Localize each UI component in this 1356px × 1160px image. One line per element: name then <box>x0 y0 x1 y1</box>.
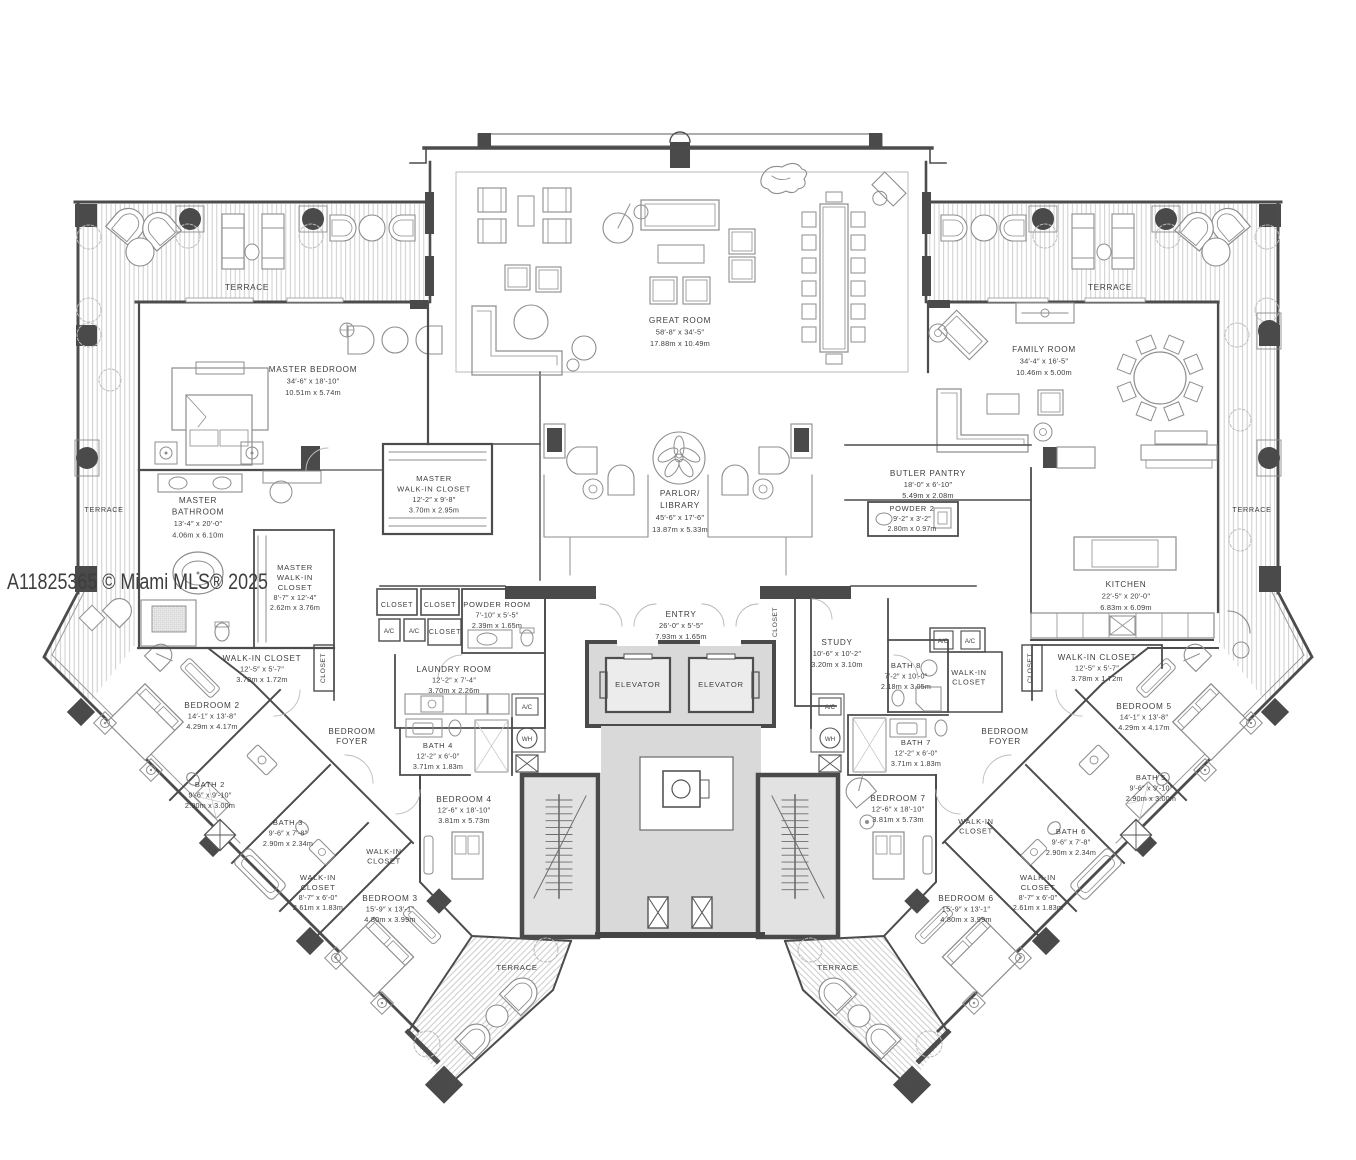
svg-text:4.06m x 6.10m: 4.06m x 6.10m <box>172 531 223 540</box>
svg-text:TERRACE: TERRACE <box>1088 283 1132 292</box>
svg-text:BATH 6: BATH 6 <box>1056 827 1086 836</box>
svg-text:26′-0″ x 5′-5″: 26′-0″ x 5′-5″ <box>659 621 703 630</box>
svg-text:8′-7″ x 12′-4″: 8′-7″ x 12′-4″ <box>274 593 317 602</box>
svg-text:CLOSET: CLOSET <box>320 653 327 683</box>
svg-text:ENTRY: ENTRY <box>665 610 696 619</box>
svg-text:2.39m x 1.65m: 2.39m x 1.65m <box>472 621 522 630</box>
svg-text:WALK-IN CLOSET: WALK-IN CLOSET <box>397 485 471 494</box>
svg-text:34′-4″ x 16′-5″: 34′-4″ x 16′-5″ <box>1020 357 1069 366</box>
svg-text:9′-6″ x 7′-8″: 9′-6″ x 7′-8″ <box>269 829 308 838</box>
svg-text:WALK-IN CLOSET: WALK-IN CLOSET <box>1058 653 1137 662</box>
svg-text:WALK-IN: WALK-IN <box>951 668 986 677</box>
svg-text:CLOSET: CLOSET <box>429 629 461 636</box>
svg-text:BEDROOM 5: BEDROOM 5 <box>1116 702 1171 711</box>
svg-text:CLOSET: CLOSET <box>424 602 456 609</box>
svg-text:TERRACE: TERRACE <box>1232 505 1271 514</box>
svg-text:9′-6″ x 9′-10″: 9′-6″ x 9′-10″ <box>1130 784 1173 793</box>
svg-text:4.80m x 3.99m: 4.80m x 3.99m <box>940 915 991 924</box>
svg-text:2.62m x 3.76m: 2.62m x 3.76m <box>270 603 320 612</box>
svg-text:15′-9″ x 13′-1″: 15′-9″ x 13′-1″ <box>942 905 991 914</box>
svg-text:2.80m x 0.97m: 2.80m x 0.97m <box>888 526 937 533</box>
svg-text:WALK-IN: WALK-IN <box>958 817 993 826</box>
svg-text:17.88m x 10.49m: 17.88m x 10.49m <box>650 339 710 348</box>
svg-text:45′-6″ x 17′-6″: 45′-6″ x 17′-6″ <box>656 513 705 522</box>
svg-text:13′-4″ x 20′-0″: 13′-4″ x 20′-0″ <box>174 519 223 528</box>
svg-text:7′-2″ x 10′-0″: 7′-2″ x 10′-0″ <box>885 672 928 681</box>
svg-text:BATH 8: BATH 8 <box>891 661 921 670</box>
svg-text:BEDROOM: BEDROOM <box>981 727 1028 736</box>
svg-text:A/C: A/C <box>409 628 420 635</box>
svg-text:8′-7″ x 6′-0″: 8′-7″ x 6′-0″ <box>299 893 338 902</box>
svg-text:3.70m x 2.26m: 3.70m x 2.26m <box>428 686 479 695</box>
svg-text:STUDY: STUDY <box>821 638 852 647</box>
svg-text:2.18m x 3.05m: 2.18m x 3.05m <box>881 682 931 691</box>
svg-text:CLOSET: CLOSET <box>301 883 336 892</box>
svg-text:3.20m x 3.10m: 3.20m x 3.10m <box>811 660 862 669</box>
svg-text:BATH 3: BATH 3 <box>273 818 303 827</box>
svg-text:3.78m x 1.72m: 3.78m x 1.72m <box>1071 674 1122 683</box>
svg-text:2.90m x 2.34m: 2.90m x 2.34m <box>263 839 313 848</box>
svg-text:GREAT ROOM: GREAT ROOM <box>649 316 711 325</box>
svg-text:CLOSET: CLOSET <box>772 607 779 637</box>
svg-text:TERRACE: TERRACE <box>496 963 537 972</box>
svg-text:2.61m x 1.83m: 2.61m x 1.83m <box>1013 903 1063 912</box>
svg-text:TERRACE: TERRACE <box>817 963 858 972</box>
svg-text:CLOSET: CLOSET <box>278 583 313 592</box>
svg-text:BEDROOM 4: BEDROOM 4 <box>436 795 491 804</box>
svg-text:12′-5″ x 5′-7″: 12′-5″ x 5′-7″ <box>1075 664 1119 673</box>
svg-text:3.81m x 5.73m: 3.81m x 5.73m <box>872 815 923 824</box>
svg-text:BATHROOM: BATHROOM <box>172 508 224 517</box>
svg-text:BATH 4: BATH 4 <box>423 741 453 750</box>
svg-text:A/C: A/C <box>522 704 533 711</box>
svg-text:TERRACE: TERRACE <box>84 505 123 514</box>
svg-text:BUTLER PANTRY: BUTLER PANTRY <box>890 469 966 478</box>
svg-text:7.93m x 1.65m: 7.93m x 1.65m <box>655 632 706 641</box>
svg-text:FOYER: FOYER <box>336 737 368 746</box>
svg-text:BEDROOM: BEDROOM <box>328 727 375 736</box>
svg-text:34′-6″ x 18′-10″: 34′-6″ x 18′-10″ <box>287 377 340 386</box>
svg-text:TERRACE: TERRACE <box>225 283 269 292</box>
svg-text:BATH 7: BATH 7 <box>901 738 931 747</box>
svg-text:A/C: A/C <box>938 638 949 645</box>
svg-text:BEDROOM 3: BEDROOM 3 <box>362 894 417 903</box>
svg-text:FAMILY ROOM: FAMILY ROOM <box>1012 345 1076 354</box>
svg-text:9′-2″ x 3′-2″: 9′-2″ x 3′-2″ <box>893 516 931 523</box>
svg-text:2.90m x 3.00m: 2.90m x 3.00m <box>185 801 235 810</box>
svg-text:BEDROOM 7: BEDROOM 7 <box>870 794 925 803</box>
svg-text:5.49m x 2.08m: 5.49m x 2.08m <box>902 491 953 500</box>
svg-text:BEDROOM 2: BEDROOM 2 <box>184 701 239 710</box>
svg-text:LIBRARY: LIBRARY <box>660 501 700 510</box>
svg-text:WALK-IN: WALK-IN <box>277 573 313 582</box>
svg-text:2.61m x 1.83m: 2.61m x 1.83m <box>293 903 343 912</box>
svg-text:10′-6″ x 10′-2″: 10′-6″ x 10′-2″ <box>813 649 862 658</box>
svg-text:WALK-IN CLOSET: WALK-IN CLOSET <box>223 654 302 663</box>
svg-text:CLOSET: CLOSET <box>381 602 413 609</box>
svg-text:MASTER BEDROOM: MASTER BEDROOM <box>269 365 358 374</box>
svg-text:CLOSET: CLOSET <box>1027 653 1034 683</box>
svg-text:12′-2″ x 9′-8″: 12′-2″ x 9′-8″ <box>413 495 456 504</box>
svg-text:4.29m x 4.17m: 4.29m x 4.17m <box>186 722 237 731</box>
svg-text:WALK-IN: WALK-IN <box>366 847 401 856</box>
svg-text:9′-6″ x 9′-10″: 9′-6″ x 9′-10″ <box>189 791 232 800</box>
svg-text:2.90m x 3.00m: 2.90m x 3.00m <box>1126 794 1176 803</box>
svg-text:12′-6″ x 18′-10″: 12′-6″ x 18′-10″ <box>438 806 491 815</box>
svg-text:4.80m x 3.99m: 4.80m x 3.99m <box>364 915 415 924</box>
svg-text:12′-6″ x 18′-10″: 12′-6″ x 18′-10″ <box>872 805 925 814</box>
svg-text:KITCHEN: KITCHEN <box>1106 580 1147 589</box>
svg-text:3.71m x 1.83m: 3.71m x 1.83m <box>413 762 463 771</box>
svg-text:12′-5″ x 5′-7″: 12′-5″ x 5′-7″ <box>240 665 284 674</box>
svg-text:58′-8″ x 34′-5″: 58′-8″ x 34′-5″ <box>656 328 705 337</box>
svg-text:3.78m x 1.72m: 3.78m x 1.72m <box>236 675 287 684</box>
svg-text:13.87m x 5.33m: 13.87m x 5.33m <box>652 525 708 534</box>
svg-text:FOYER: FOYER <box>989 737 1021 746</box>
svg-text:3.71m x 1.83m: 3.71m x 1.83m <box>891 759 941 768</box>
svg-text:4.29m x 4.17m: 4.29m x 4.17m <box>1118 723 1169 732</box>
svg-text:WALK-IN: WALK-IN <box>300 873 336 882</box>
svg-text:MASTER: MASTER <box>416 474 452 483</box>
svg-text:12′-2″ x 6′-0″: 12′-2″ x 6′-0″ <box>895 749 938 758</box>
svg-text:14′-1″ x 13′-8″: 14′-1″ x 13′-8″ <box>188 712 237 721</box>
svg-text:MASTER: MASTER <box>277 563 313 572</box>
svg-text:CLOSET: CLOSET <box>959 827 993 836</box>
svg-text:6.83m x 6.09m: 6.83m x 6.09m <box>1100 603 1151 612</box>
svg-text:ELEVATOR: ELEVATOR <box>698 680 744 689</box>
svg-text:A/C: A/C <box>965 638 976 645</box>
svg-text:WH: WH <box>522 736 532 743</box>
svg-text:3.70m x 2.95m: 3.70m x 2.95m <box>409 506 459 515</box>
svg-text:15′-9″ x 13′-1″: 15′-9″ x 13′-1″ <box>366 905 415 914</box>
svg-text:3.81m x 5.73m: 3.81m x 5.73m <box>438 816 489 825</box>
svg-text:BATH 2: BATH 2 <box>195 780 225 789</box>
svg-text:BEDROOM 6: BEDROOM 6 <box>938 894 993 903</box>
svg-text:MASTER: MASTER <box>179 496 217 505</box>
svg-text:POWDER 2: POWDER 2 <box>889 504 934 513</box>
svg-text:2.90m x 2.34m: 2.90m x 2.34m <box>1046 848 1096 857</box>
svg-text:14′-1″ x 13′-8″: 14′-1″ x 13′-8″ <box>1120 713 1169 722</box>
svg-text:A/C: A/C <box>825 704 836 711</box>
svg-text:PARLOR/: PARLOR/ <box>660 489 700 498</box>
svg-text:10.51m x 5.74m: 10.51m x 5.74m <box>285 388 341 397</box>
svg-text:22′-5″ x 20′-0″: 22′-5″ x 20′-0″ <box>1102 592 1151 601</box>
svg-text:18′-0″ x 6′-10″: 18′-0″ x 6′-10″ <box>904 480 953 489</box>
svg-text:BATH 5: BATH 5 <box>1136 773 1166 782</box>
svg-text:WALK-IN: WALK-IN <box>1020 873 1056 882</box>
svg-text:A/C: A/C <box>384 628 395 635</box>
svg-text:12′-2″ x 6′-0″: 12′-2″ x 6′-0″ <box>417 752 460 761</box>
svg-text:10.46m x 5.00m: 10.46m x 5.00m <box>1016 368 1072 377</box>
svg-text:12′-2″ x 7′-4″: 12′-2″ x 7′-4″ <box>432 676 476 685</box>
svg-text:CLOSET: CLOSET <box>952 678 986 687</box>
svg-text:POWDER ROOM: POWDER ROOM <box>463 600 531 609</box>
svg-text:LAUNDRY ROOM: LAUNDRY ROOM <box>417 665 492 674</box>
svg-text:WH: WH <box>825 736 835 743</box>
svg-text:CLOSET: CLOSET <box>1021 883 1056 892</box>
svg-text:ELEVATOR: ELEVATOR <box>615 680 661 689</box>
svg-text:8′-7″ x 6′-0″: 8′-7″ x 6′-0″ <box>1019 893 1058 902</box>
svg-text:7′-10″ x 5′-5″: 7′-10″ x 5′-5″ <box>476 611 519 620</box>
svg-text:CLOSET: CLOSET <box>367 857 401 866</box>
svg-text:9′-6″ x 7′-8″: 9′-6″ x 7′-8″ <box>1052 838 1091 847</box>
svg-text:A11825365 © Miami MLS® 2025: A11825365 © Miami MLS® 2025 <box>7 569 268 594</box>
